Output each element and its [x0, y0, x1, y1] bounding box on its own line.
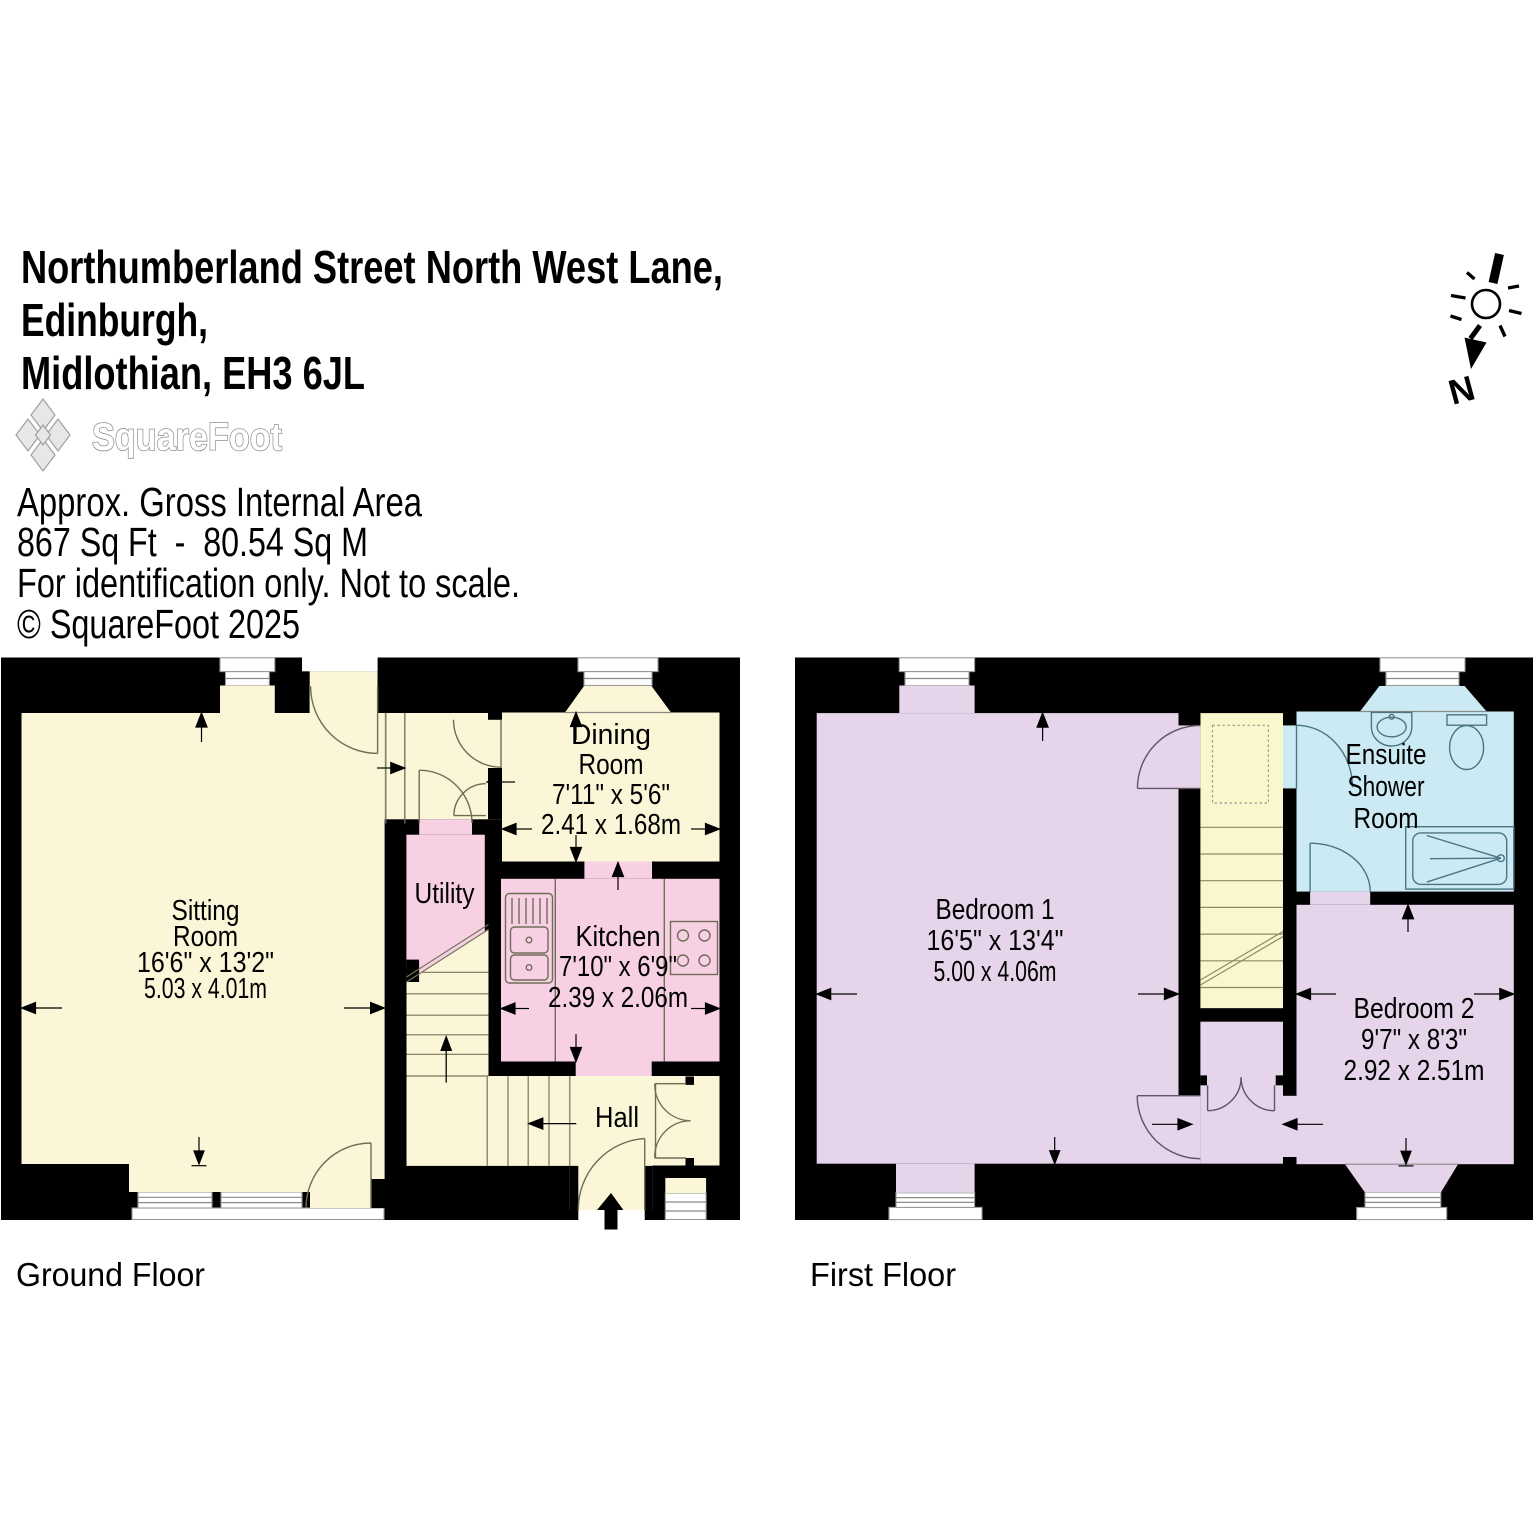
svg-text:2.92 x 2.51m: 2.92 x 2.51m — [1344, 1055, 1485, 1087]
svg-text:867 Sq Ft - 80.54 Sq M: 867 Sq Ft - 80.54 Sq M — [17, 519, 368, 565]
svg-text:Bedroom 2: Bedroom 2 — [1354, 993, 1475, 1025]
svg-text:7'10" x 6'9": 7'10" x 6'9" — [559, 951, 677, 983]
svg-text:16'5" x 13'4": 16'5" x 13'4" — [927, 925, 1064, 957]
svg-text:Dining: Dining — [571, 719, 651, 751]
svg-text:2.41 x 1.68m: 2.41 x 1.68m — [541, 809, 681, 841]
svg-text:Shower: Shower — [1348, 771, 1425, 803]
svg-text:7'11" x 5'6": 7'11" x 5'6" — [552, 779, 670, 811]
svg-text:© SquareFoot 2025: © SquareFoot 2025 — [17, 601, 300, 647]
svg-text:Kitchen: Kitchen — [576, 921, 661, 953]
svg-text:SquareFoot: SquareFoot — [92, 416, 282, 459]
svg-text:9'7" x 8'3": 9'7" x 8'3" — [1361, 1024, 1467, 1056]
svg-text:Edinburgh,: Edinburgh, — [21, 294, 208, 346]
svg-text:2.39 x 2.06m: 2.39 x 2.06m — [548, 982, 688, 1014]
svg-text:Room: Room — [1354, 803, 1419, 835]
svg-text:5.03 x 4.01m: 5.03 x 4.01m — [144, 973, 267, 1005]
svg-text:First Floor: First Floor — [810, 1256, 956, 1293]
svg-text:Ensuite: Ensuite — [1346, 739, 1427, 771]
svg-text:Bedroom 1: Bedroom 1 — [936, 894, 1055, 926]
svg-text:Northumberland Street North We: Northumberland Street North West Lane, — [21, 241, 723, 293]
svg-text:Midlothian, EH3 6JL: Midlothian, EH3 6JL — [21, 347, 365, 399]
svg-text:5.00 x 4.06m: 5.00 x 4.06m — [934, 956, 1057, 988]
svg-text:Hall: Hall — [595, 1102, 639, 1134]
svg-text:Ground Floor: Ground Floor — [16, 1256, 205, 1293]
svg-text:Room: Room — [579, 749, 644, 781]
svg-text:Utility: Utility — [415, 878, 475, 910]
svg-text:For identification only. Not t: For identification only. Not to scale. — [17, 560, 520, 606]
